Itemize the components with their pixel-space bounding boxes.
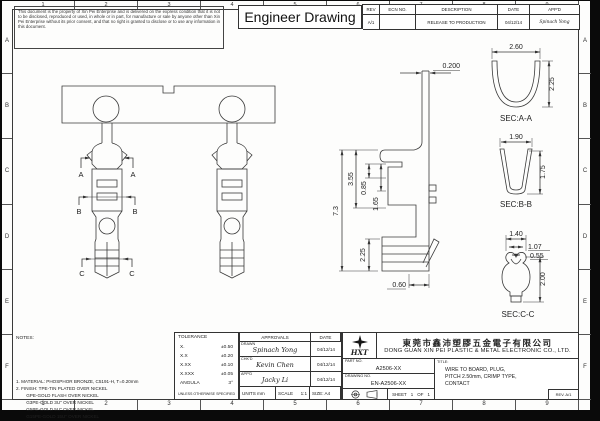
approvals-date-heading: DATE (311, 333, 341, 342)
drawing-number-label: DRAWING NO. (345, 374, 371, 378)
section-view-aa: 2.60 2.25 SEC:A-A (492, 44, 556, 123)
tolerance-row: X. ±0.50 (175, 343, 238, 352)
title-lines: WIRE TO BOARD, PLUG,PITCH 2.50mm, CRIMP … (445, 367, 517, 388)
company-name-en: DONG GUAN XIN PEI PLASTIC & METAL ELECTR… (384, 348, 571, 354)
part-number-row: PART NO. A2506-XX (343, 359, 434, 374)
tolerance-value: ±0.50 (221, 343, 233, 352)
front-view: A A B B C C (62, 86, 275, 278)
approval-row: APP'D Jacky Li 04/12/14 (240, 372, 341, 387)
section-c-label: C (129, 269, 135, 278)
dim-aa-height: 2.25 (549, 77, 556, 91)
title-line: WIRE TO BOARD, PLUG, (445, 367, 517, 374)
drawing-number-value: EN-A2506-XX (343, 381, 434, 387)
note-line: 1. MATERIAL: PHOSPHOR BRONZE, C5191-H, T… (16, 378, 174, 385)
drawing-number-row: DRAWING NO. EN-A2506-XX (343, 374, 434, 389)
rev-badge: REV. A/1 (548, 389, 578, 399)
tolerance-row: ANGULA 3° (175, 379, 238, 388)
notes-heading: NOTES: (16, 335, 174, 342)
rev-header-ecn: ECN NO. (380, 5, 416, 15)
section-view-bb: 1.90 1.75 SEC:B-B (500, 134, 547, 209)
approval-date: 04/12/14 (311, 372, 341, 387)
page-title: Engineer Drawing (238, 5, 362, 29)
company-name-cn: 東莞市鑫沛塑膠五金電子有限公司 (402, 338, 552, 348)
approvals-block: APPROVALS DATE DRAWN Spinach Yong 04/12/… (239, 332, 342, 400)
rev-cell-date: 04/12/14 (498, 15, 530, 30)
note-line: G5PE-GOLD 5U" OVER NICKEL (16, 406, 174, 413)
approval-row: DRAWN Spinach Yong 04/12/14 (240, 342, 341, 357)
tolerance-value: 3° (228, 379, 233, 388)
title-label: TITLE: (437, 360, 448, 364)
disclaimer-text: This document is the property of Xin Pei… (14, 6, 224, 49)
dim-cc-107: 1.07 (528, 244, 542, 251)
tolerance-value: ±0.10 (221, 361, 233, 370)
note-line: GPE-GOLD FLASH OVER NICKEL (16, 392, 174, 399)
tolerance-label: X.XX (180, 361, 191, 370)
title-line: CONTACT (445, 381, 517, 388)
revision-table: REV ECN NO. DESCRIPTION DATE APP'D A/1 R… (362, 4, 579, 29)
tolerance-label: X.X (180, 352, 188, 361)
tolerance-value: ±0.05 (221, 370, 233, 379)
dim-cc-140: 1.40 (509, 231, 523, 238)
sheet-total: 1 (427, 392, 429, 397)
rev-header-description: DESCRIPTION (416, 5, 498, 15)
rev-cell-description: RELEASE TO PRODUCTION (416, 15, 498, 30)
section-bb-title: SEC:B-B (500, 200, 532, 209)
dim-060: 0.60 (392, 282, 406, 289)
star-logo-icon (352, 335, 368, 349)
dim-085: 0.85 (361, 181, 368, 195)
tolerance-row: X.XX ±0.10 (175, 361, 238, 370)
dim-165: 1.65 (373, 197, 380, 211)
tolerance-row: X.XXX ±0.05 (175, 370, 238, 379)
approval-signature: Spinach Yong (240, 346, 310, 354)
screenshot-stage: 123456789 123456789 ABCDEF ABCDEF (0, 0, 600, 421)
tolerance-label: ANGULA (180, 379, 200, 388)
dim-225: 2.25 (360, 248, 367, 262)
rev-header-appd: APP'D (530, 5, 580, 15)
tolerance-footer: UNLESS OTHERWISE SPECIFIED (175, 388, 238, 396)
tolerance-label: X.XXX (180, 370, 194, 379)
notes-block: NOTES: 1. MATERIAL: PHOSPHOR BRONZE, C51… (16, 321, 174, 421)
sheet-cell: SHEET 1 OF 1 (388, 389, 434, 399)
section-aa-title: SEC:A-A (500, 114, 533, 123)
tolerance-rows: X. ±0.50 X.X ±0.20 X.XX ±0.10 X.XXX ±0.0… (175, 343, 238, 388)
rev-cell-ecn (380, 15, 416, 30)
dim-bb-height: 1.75 (540, 165, 547, 179)
title-line: PITCH 2.50mm, CRIMP TYPE, (445, 374, 517, 381)
sheet-number: 1 (411, 392, 413, 397)
dim-thickness: 0.200 (442, 63, 460, 70)
dim-355: 3.55 (348, 172, 355, 186)
rev-header-rev: REV (363, 5, 380, 15)
section-view-cc: 1.40 1.07 0.55 2.00 SEC:C-C (502, 231, 550, 319)
tolerance-value: ±0.20 (221, 352, 233, 361)
section-cc-title: SEC:C-C (502, 310, 535, 319)
part-number-label: PART NO. (345, 359, 363, 363)
scale-label: SCALE (278, 391, 293, 396)
dim-cc-height: 2.00 (540, 272, 547, 286)
notes-list: 1. MATERIAL: PHOSPHOR BRONZE, C5191-H, T… (16, 356, 174, 421)
tolerance-row: X.X ±0.20 (175, 352, 238, 361)
approval-row: CHK'D Kevin Chen 04/12/14 (240, 357, 341, 372)
dim-total-height: 7.3 (333, 206, 340, 216)
part-number-value: A2506-XX (343, 366, 434, 372)
rev-cell-appd: Spinach Yong (530, 15, 580, 30)
drawing-title-cell: TITLE: WIRE TO BOARD, PLUG,PITCH 2.50mm,… (435, 359, 578, 399)
rev-header-date: DATE (498, 5, 530, 15)
title-block: HXT 東莞市鑫沛塑膠五金電子有限公司 DONG GUAN XIN PEI PL… (342, 332, 579, 400)
dim-bb-width: 1.90 (509, 134, 523, 141)
section-a-label: A (78, 170, 83, 179)
dim-cc-055: 0.55 (530, 253, 544, 260)
section-c-label: C (79, 269, 85, 278)
tolerance-block: TOLERANCE X. ±0.50 X.X ±0.20 X.XX ±0.10 (174, 332, 239, 400)
approvals-rows: DRAWN Spinach Yong 04/12/14 CHK'D Kevin … (240, 342, 341, 387)
projection-symbol-icon (343, 389, 388, 399)
tolerance-label: X. (180, 343, 185, 352)
company-logo: HXT (343, 333, 377, 358)
note-line: G3PE-GOLD 3U" OVER NICKEL (16, 399, 174, 406)
scale-value: 1:1 (301, 391, 307, 396)
approval-date: 04/12/14 (311, 342, 341, 357)
note-line: 2. FINISH: TPE-TIN PLATED OVER NICKEL (16, 385, 174, 392)
approvals-heading: APPROVALS (240, 333, 311, 342)
section-b-label: B (76, 207, 81, 216)
scale-cell: SCALE 1:1 (276, 387, 310, 399)
sheet-label: SHEET (392, 392, 407, 397)
units-cell: UNITS mm (240, 387, 276, 399)
approval-date: 04/12/14 (311, 357, 341, 372)
drawing-sheet: 123456789 123456789 ABCDEF ABCDEF (2, 1, 590, 410)
side-view: 0.200 7.3 3.55 0.85 1.65 2.25 0 (333, 63, 460, 289)
dim-aa-width: 2.60 (509, 44, 523, 51)
size-cell: SIZE: A4 (310, 387, 341, 399)
rev-cell-rev: A/1 (363, 15, 380, 30)
section-a-label: A (130, 170, 135, 179)
sheet-of-label: OF (417, 392, 423, 397)
note-line: G15PE-GOLD 15U" OVER NICKEL (16, 413, 174, 420)
logo-text: HXT (351, 348, 368, 357)
section-b-label: B (132, 207, 137, 216)
approval-signature: Jacky Li (240, 376, 310, 384)
approval-signature: Kevin Chen (240, 361, 310, 369)
tolerance-heading: TOLERANCE (175, 333, 238, 343)
